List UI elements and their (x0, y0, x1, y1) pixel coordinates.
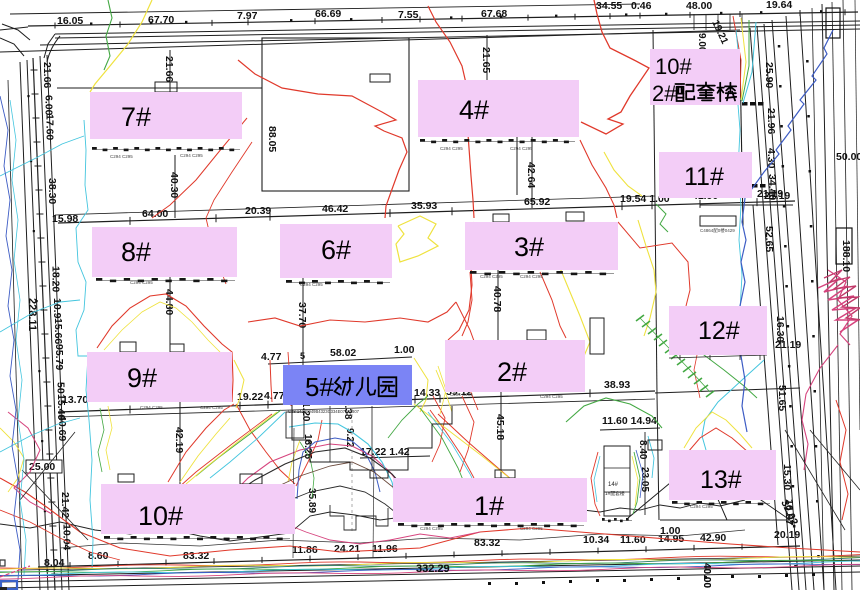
svg-text:C4864配0楼0429: C4864配0楼0429 (700, 227, 735, 234)
svg-text:15.30: 15.30 (781, 464, 793, 490)
svg-text:40.30: 40.30 (168, 172, 180, 198)
svg-text:21.65: 21.65 (480, 47, 492, 73)
svg-text:45.18: 45.18 (494, 414, 506, 440)
svg-text:C294 C295: C294 C295 (690, 504, 713, 509)
svg-text:88.05: 88.05 (266, 126, 278, 152)
svg-text:1.00: 1.00 (394, 344, 415, 356)
svg-text:52.65: 52.65 (763, 226, 775, 252)
svg-text:21.42: 21.42 (59, 492, 71, 518)
svg-text:50: 50 (54, 382, 66, 394)
svg-text:10.34: 10.34 (583, 534, 609, 546)
svg-text:46.42: 46.42 (322, 203, 348, 215)
svg-text:C294 C295: C294 C295 (510, 146, 533, 151)
svg-text:3#: 3# (514, 232, 544, 262)
svg-text:21.19: 21.19 (775, 339, 801, 351)
svg-text:38.93: 38.93 (604, 379, 630, 391)
svg-text:50.00: 50.00 (836, 151, 860, 163)
svg-text:332.29: 332.29 (416, 563, 450, 575)
svg-text:34.55: 34.55 (596, 0, 622, 12)
svg-text:2#: 2# (497, 357, 527, 387)
svg-text:10#: 10# (138, 501, 183, 531)
svg-text:1#: 1# (474, 491, 504, 521)
svg-text:38.30: 38.30 (46, 178, 58, 204)
svg-text:10.9: 10.9 (51, 298, 63, 319)
svg-text:35.93: 35.93 (411, 200, 437, 212)
svg-text:C294 C295: C294 C295 (540, 394, 563, 399)
svg-text:C294 C295: C294 C295 (110, 154, 133, 159)
svg-text:C294 C295: C294 C295 (450, 392, 473, 397)
svg-text:40.00: 40.00 (701, 563, 712, 588)
svg-text:11.60 14.94: 11.60 14.94 (602, 415, 657, 427)
svg-text:8#: 8# (121, 237, 151, 267)
svg-text:11#: 11# (684, 163, 724, 191)
svg-text:40.78: 40.78 (491, 286, 503, 312)
svg-text:4#: 4# (459, 95, 489, 125)
svg-text:6#: 6# (321, 235, 351, 265)
svg-text:95.79: 95.79 (53, 344, 65, 370)
svg-text:44.80: 44.80 (163, 289, 175, 315)
svg-text:13#: 13# (700, 466, 742, 494)
svg-text:12#: 12# (698, 317, 740, 345)
svg-text:67.68: 67.68 (481, 8, 507, 20)
svg-text:10.04: 10.04 (60, 524, 72, 550)
svg-text:21.19: 21.19 (757, 188, 783, 200)
svg-text:14#: 14# (608, 482, 619, 488)
svg-text:C294 C295: C294 C295 (300, 282, 323, 287)
svg-text:17.60: 17.60 (43, 114, 55, 140)
svg-text:C294 C295: C294 C295 (520, 274, 543, 279)
svg-text:228.11: 228.11 (26, 298, 38, 331)
svg-text:16.05: 16.05 (57, 15, 83, 27)
svg-text:6.00: 6.00 (43, 95, 55, 116)
svg-text:25.00: 25.00 (29, 461, 55, 473)
svg-text:C294 C295: C294 C295 (140, 405, 163, 410)
svg-text:24.21: 24.21 (334, 543, 360, 555)
svg-text:C294 C295: C294 C295 (420, 526, 443, 531)
svg-text:15.66: 15.66 (52, 318, 64, 344)
svg-text:0.46: 0.46 (631, 0, 652, 12)
svg-text:67.70: 67.70 (148, 14, 174, 26)
svg-text:48.00: 48.00 (686, 0, 712, 12)
svg-text:7.55: 7.55 (398, 9, 419, 21)
svg-text:4.77: 4.77 (264, 390, 285, 402)
svg-text:21.96: 21.96 (765, 108, 777, 134)
svg-text:65.92: 65.92 (524, 196, 550, 208)
svg-text:9#: 9# (127, 363, 157, 393)
svg-text:58.02: 58.02 (330, 347, 356, 359)
svg-text:5#: 5# (305, 372, 334, 402)
svg-text:25.90: 25.90 (763, 62, 775, 88)
svg-text:C294 C295: C294 C295 (180, 153, 203, 158)
svg-text:7.97: 7.97 (237, 10, 258, 22)
svg-text:13.70: 13.70 (62, 394, 88, 406)
svg-text:7#: 7# (121, 102, 151, 132)
svg-text:21.66: 21.66 (41, 62, 53, 88)
svg-text:4.77: 4.77 (261, 351, 282, 363)
svg-text:23.05: 23.05 (639, 467, 650, 492)
svg-text:8.40: 8.40 (637, 440, 648, 460)
svg-text:C294 C295: C294 C295 (440, 146, 463, 151)
svg-text:20.39: 20.39 (245, 205, 271, 217)
svg-text:40.69: 40.69 (56, 415, 68, 441)
svg-text:42.64: 42.64 (525, 162, 537, 188)
svg-text:C294 C295: C294 C295 (520, 526, 543, 531)
svg-text:C38 14205949B4323C334E07 M1807: C38 14205949B4323C334E07 M1807 (288, 409, 360, 414)
svg-text:21.66: 21.66 (163, 56, 175, 82)
svg-text:C294 C295: C294 C295 (480, 274, 503, 279)
svg-text:2#: 2# (652, 81, 677, 106)
svg-text:1#配套楼: 1#配套楼 (605, 490, 625, 497)
svg-text:42.19: 42.19 (173, 427, 185, 453)
svg-text:C294 C295: C294 C295 (130, 280, 153, 285)
svg-text:10#: 10# (655, 54, 692, 79)
svg-text:64.00: 64.00 (142, 208, 168, 220)
svg-text:66.69: 66.69 (315, 8, 341, 20)
svg-text:C294 C295: C294 C295 (200, 405, 223, 410)
svg-text:83.32: 83.32 (183, 550, 209, 562)
svg-text:11.86: 11.86 (292, 544, 318, 556)
svg-text:18.20: 18.20 (50, 266, 62, 292)
svg-text:188.10: 188.10 (840, 240, 852, 272)
svg-text:19.64: 19.64 (766, 0, 792, 11)
